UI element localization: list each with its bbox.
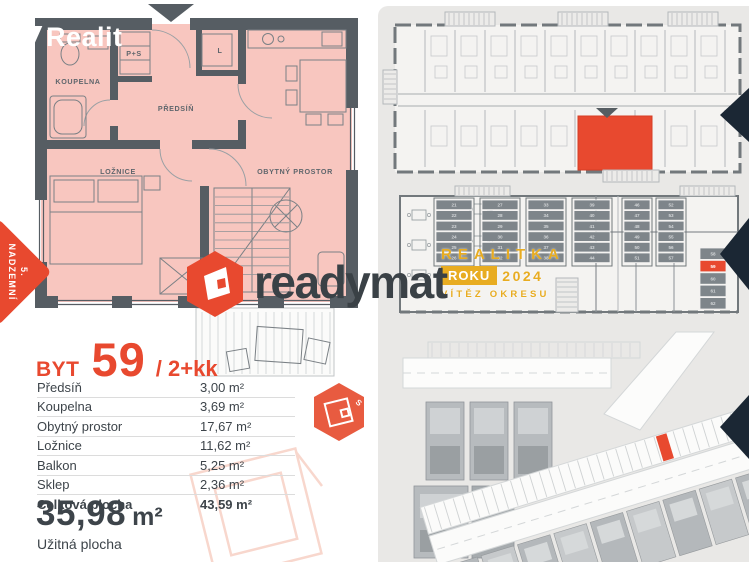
storage-cell-number: 29: [497, 224, 503, 229]
storage-cell-number: 34: [543, 213, 549, 218]
area-row-label: Balkon: [37, 458, 200, 473]
usable-area-label: Užitná plocha: [37, 536, 122, 552]
site-plan: [403, 332, 749, 562]
storage-cell-number: 58: [710, 252, 716, 257]
floor-hexagon-icon: S: [312, 382, 366, 442]
storage-cell-number: 36: [543, 234, 549, 239]
floor-badge-number: 5.: [17, 232, 29, 312]
row-houses-left: [426, 402, 552, 480]
room-label-loznice: LOŽNICE: [100, 167, 136, 176]
area-row-label: Předsíň: [37, 380, 200, 395]
award-line2: ROKU 2024: [441, 266, 611, 285]
room-label-obytny: OBYTNÝ PROSTOR: [257, 167, 333, 176]
building-roof: [518, 408, 548, 434]
hatch-stub: [455, 186, 510, 196]
area-row-label: Koupelna: [37, 399, 200, 414]
realit-watermark: Realit: [26, 22, 123, 53]
room-label-koupelna: KOUPELNA: [55, 77, 100, 86]
storage-cell-number: 33: [543, 203, 549, 208]
building-yard: [430, 446, 460, 474]
area-row-value: 17,67 m²: [200, 419, 295, 434]
storage-cell-number: 55: [668, 234, 674, 239]
award-roku-box: ROKU: [441, 266, 497, 285]
upper-floor-plan: [395, 25, 740, 172]
storage-cell-number: 57: [668, 256, 674, 261]
area-row: Obytný prostor17,67 m²: [37, 417, 295, 437]
area-row: Sklep2,36 m²: [37, 476, 295, 496]
storage-cell-number: 49: [634, 234, 640, 239]
area-row-value: 2,36 m²: [200, 477, 295, 492]
readymat-logo: readymat: [184, 250, 447, 318]
storage-cell-number: 61: [710, 289, 716, 294]
storage-cell-number: 35: [543, 224, 549, 229]
storage-cell-number: 51: [634, 256, 640, 261]
area-row-value: 3,69 m²: [200, 399, 295, 414]
usable-area-unit: m²: [132, 503, 163, 531]
storage-cell-number: 23: [451, 224, 457, 229]
storage-cell-number: 50: [634, 245, 640, 250]
storage-cell-number: 39: [589, 203, 595, 208]
readymat-hexagon-icon: [184, 250, 246, 318]
storage-cell-number: 28: [497, 213, 503, 218]
storage-cell-number: 48: [634, 224, 640, 229]
award-line1: REALITKA: [441, 246, 611, 263]
hatch-stub: [558, 12, 608, 26]
floorplan-sheet: { "brand": { "logo_text": "readymat", "w…: [0, 0, 749, 562]
hatch-stub: [445, 12, 495, 26]
award-badge: REALITKA ROKU 2024 VÍTĚZ OKRESU: [441, 246, 611, 300]
area-row: Ložnice11,62 m²: [37, 437, 295, 457]
usable-area-value: 35,98: [36, 494, 126, 533]
storage-cell-number: 21: [451, 203, 457, 208]
storage-cell-number: 56: [668, 245, 674, 250]
floor-badge-name: NADZEMNÍ: [6, 232, 18, 312]
storage-cell-number: 41: [589, 224, 595, 229]
area-row: Balkon5,25 m²: [37, 456, 295, 476]
storage-cell-number: 62: [710, 301, 716, 306]
storage-cell-number: 46: [634, 203, 640, 208]
storage-cell-number: 54: [668, 224, 674, 229]
area-row-value: 43,59 m²: [200, 497, 295, 512]
storage-cell-number: 40: [589, 213, 595, 218]
storage-cell-number: 27: [497, 203, 503, 208]
area-row-label: Sklep: [37, 477, 200, 492]
room-label-l: L: [218, 46, 223, 55]
award-year: 2024: [502, 268, 543, 284]
hatch-stub: [668, 12, 718, 26]
storage-cell-number: 42: [589, 234, 595, 239]
highlighted-unit: [578, 116, 652, 170]
area-row-label: Ložnice: [37, 438, 200, 453]
storage-cell-number: 60: [710, 276, 716, 281]
hatch-stub: [680, 186, 735, 196]
room-label-predsin: PŘEDSÍŇ: [158, 104, 194, 113]
area-row-value: 5,25 m²: [200, 458, 295, 473]
award-line3: VÍTĚZ OKRESU: [441, 289, 611, 300]
storage-cell-number: 47: [634, 213, 640, 218]
area-row-value: 3,00 m²: [200, 380, 295, 395]
side-cells: 5859606162: [700, 248, 726, 309]
building-roof: [474, 408, 504, 434]
building-roof: [430, 408, 460, 434]
storage-cell-number: 30: [497, 234, 503, 239]
floor-badge: 5. NADZEMNÍ: [0, 232, 29, 312]
apartment-floorplan: KOUPELNA P+S PŘEDSÍŇ L LOŽNICE OBYTNÝ PR…: [0, 0, 365, 380]
realit-watermark-text: Realit: [46, 22, 123, 53]
area-row-label: Obytný prostor: [37, 419, 200, 434]
parking-top-ticks: [432, 343, 630, 357]
area-row: Koupelna3,69 m²: [37, 398, 295, 418]
storage-cell-number: 59: [710, 264, 716, 269]
readymat-logo-text: readymat: [254, 255, 447, 309]
building-yard: [474, 446, 504, 474]
area-row-value: 11,62 m²: [200, 438, 295, 453]
hatch-stub: [603, 170, 659, 182]
storage-cell-number: 24: [451, 234, 457, 239]
storage-cell-number: 52: [668, 203, 674, 208]
entrance-marker-icon: [148, 4, 194, 22]
room-label-ps: P+S: [126, 49, 142, 58]
usable-area: 35,98m²: [36, 494, 163, 534]
area-row: Předsíň3,00 m²: [37, 378, 295, 398]
storage-cell-number: 22: [451, 213, 457, 218]
storage-cell-number: 53: [668, 213, 674, 218]
